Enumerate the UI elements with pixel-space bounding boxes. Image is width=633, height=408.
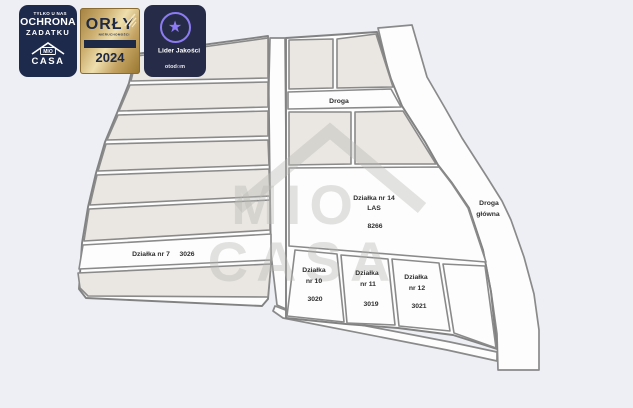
top-parcel-a [289, 39, 333, 89]
orly-award-badge: ORŁY NIERUCHOMOŚCI LAUREAT KONKURSU 2024 [80, 8, 140, 74]
plot-10-nr: nr 10 [306, 278, 322, 285]
deposit-protection-badge: TYLKO U NAS OCHRONA ZADATKU MIO CASA [19, 5, 77, 77]
plot-10-area: 3020 [307, 296, 322, 303]
plot-12-area: 3021 [411, 303, 426, 310]
left-strip-3 [107, 111, 268, 140]
listing-plot-map: MIO CASA Działka nr 7 3026 Droga Działka… [0, 0, 633, 408]
quality-title: Lider Jakości [158, 48, 192, 53]
miocasa-house-icon: MIO CASA [28, 40, 68, 66]
award-subtitle: NIERUCHOMOŚCI [99, 34, 122, 36]
star-circle-icon: ★ [160, 12, 191, 43]
award-year: 2024 [80, 50, 140, 65]
plot-7-name: Działka nr 7 [132, 251, 170, 258]
feather-icon [123, 12, 137, 28]
plot-11-name: Działka [355, 270, 379, 277]
plot-14-note: LAS [367, 205, 381, 212]
otodom-logo-suffix: m [180, 63, 185, 69]
miocasa-logo-bottom: CASA [32, 56, 65, 66]
main-road-label-2: główna [476, 211, 500, 218]
left-strip-2 [119, 82, 268, 111]
star-icon: ★ [168, 20, 182, 36]
cross-road-label: Droga [329, 98, 349, 105]
plot-14-name: Działka nr 14 [353, 195, 395, 202]
left-strip-4 [98, 140, 269, 171]
plot-12-nr: nr 12 [409, 285, 425, 292]
deposit-subtitle: ZADATKU [19, 28, 77, 37]
plot-11-area: 3019 [363, 301, 378, 308]
deposit-top-line: TYLKO U NAS [34, 12, 63, 16]
plot-10-name: Działka [302, 267, 326, 274]
quality-leader-badge: ★ Lider Jakości otodom [144, 5, 206, 77]
miocasa-logo-top: MIO [43, 49, 53, 55]
plot-7-area: 3026 [179, 251, 194, 258]
deposit-title: OCHRONA [19, 17, 77, 28]
plot-11-nr: nr 11 [360, 281, 376, 288]
watermark-line1: MIO [231, 173, 361, 236]
award-band: LAUREAT KONKURSU [84, 40, 136, 48]
main-road-label-1: Droga [479, 200, 499, 207]
plot-14-area: 8266 [367, 223, 382, 230]
otodom-logo-prefix: otod [165, 63, 177, 69]
otodom-logo: otodom [158, 63, 192, 69]
plot-12-name: Działka [404, 274, 428, 281]
